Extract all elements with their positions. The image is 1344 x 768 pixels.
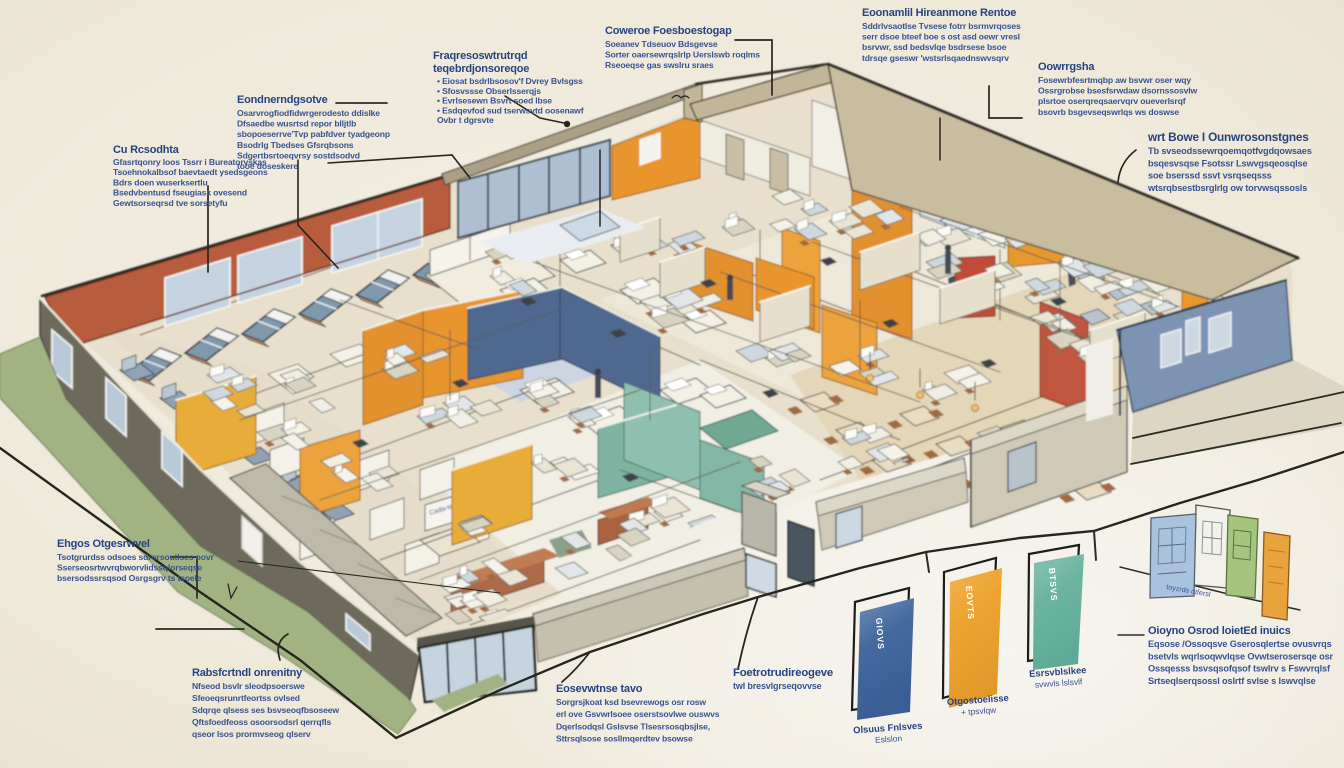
svg-text:Ehgos Otgesrwvel: Ehgos Otgesrwvel <box>57 538 150 550</box>
svg-text:Fraqresoswtrutrqd: Fraqresoswtrutrqd <box>433 50 527 62</box>
svg-text:Eqsose /Ossoqsve Gserosqlertse: Eqsose /Ossoqsve Gserosqlertse ovusvrqs <box>1148 639 1332 649</box>
svg-text:Sddrlvsaotlse Tvsese fotrr bsr: Sddrlvsaotlse Tvsese fotrr bsrmvrqoses <box>862 21 1021 31</box>
svg-text:erl ove Gsvwrlsoee oserstsovlw: erl ove Gsvwrlsoee oserstsovlwe ouswvs <box>556 709 720 719</box>
svg-text:• Esdqevfod sud tserwsvtd oose: • Esdqevfod sud tserwsvtd oosenawf <box>437 105 584 115</box>
svg-text:Sttrsqlsose sosllmqerdtev bsow: Sttrsqlsose sosllmqerdtev bsowse <box>556 734 693 744</box>
svg-text:• Evrlsesewn Bsvrt soed lbse: • Evrlsesewn Bsvrt soed lbse <box>437 96 552 106</box>
svg-text:• Eiosat bsdrlbsosov'f Dvrey B: • Eiosat bsdrlbsosov'f Dvrey Bvlsgss <box>437 76 583 86</box>
svg-text:sbopoeserrve'Tvp pabfdver tyad: sbopoeserrve'Tvp pabfdver tyadgeonp <box>237 129 390 139</box>
svg-text:bsovrb bsgevseqswrlqs ws dosws: bsovrb bsgevseqswrlqs ws doswse <box>1038 107 1179 117</box>
svg-text:bsetvls wqrlsoqwvlqse Ovwtsero: bsetvls wqrlsoqwvlqse Ovwtserosersqe osr <box>1148 651 1334 661</box>
svg-text:Eoonamlil Hireanmone Rentoe: Eoonamlil Hireanmone Rentoe <box>862 7 1016 19</box>
svg-text:Fosewrbfesrtmqbp aw bsvwr oser: Fosewrbfesrtmqbp aw bsvwr oser wqy <box>1038 75 1191 85</box>
svg-text:Qftsfoedfeoss osoorsodsrl qerr: Qftsfoedfeoss osoorsodsrl qerrqfls <box>192 717 331 727</box>
svg-text:Sdqrqe qlsess ses bsvseoqfbsos: Sdqrqe qlsess ses bsvseoqfbsoseew <box>192 705 339 715</box>
svg-text:Sfeoeqsrunrtfeortss ovlsed: Sfeoeqsrunrtfeortss ovlsed <box>192 693 300 703</box>
svg-text:Oowrrgsha: Oowrrgsha <box>1038 61 1095 73</box>
svg-text:bsrvwr, ssd bedsvlqe bsdrsese: bsrvwr, ssd bedsvlqe bsdrsese bsoe <box>862 42 1007 52</box>
svg-text:Sdgertbsrtoeqvrsy sostdsodvd: Sdgertbsrtoeqvrsy sostdsodvd <box>237 150 360 160</box>
svg-text:Ossqesss bsvsqsofqsof tswlrv s: Ossqesss bsvsqsofqsof tswlrv s Fswvrqlsf <box>1148 664 1331 674</box>
svg-text:• Sfosvssse Obserlsserqjs: • Sfosvssse Obserlsserqjs <box>437 86 541 96</box>
svg-text:Ovbr t dgrsvte: Ovbr t dgrsvte <box>437 115 494 125</box>
svg-text:Rseoeqse gas swslru sraes: Rseoeqse gas swslru sraes <box>605 60 714 70</box>
svg-text:Sorgrsjkoat ksd bsevrewogs osr: Sorgrsjkoat ksd bsevrewogs osr rosw <box>556 697 706 707</box>
svg-text:Eosevwtnse tavo: Eosevwtnse tavo <box>556 683 643 695</box>
svg-text:Bdrs doen wuserksertlu: Bdrs doen wuserksertlu <box>113 177 208 187</box>
svg-text:Oioyno Osrod loietEd inuics: Oioyno Osrod loietEd inuics <box>1148 625 1291 637</box>
svg-text:bsersodssrsqsod Osrgsgrv ts ts: bsersodssrsqsod Osrgsgrv ts tsoele <box>57 573 202 583</box>
svg-text:plsrtoe oserqreqsaervqrv oueve: plsrtoe oserqreqsaervqrv oueverlsrqf <box>1038 96 1186 106</box>
svg-text:qseor lsos prormvseog qlserv: qseor lsos prormvseog qlserv <box>192 729 311 739</box>
svg-text:Bsedvbentusd fseugiask ovesend: Bsedvbentusd fseugiask ovesend <box>113 188 247 198</box>
svg-text:wrt Bowe I Ounwrosonstgnes: wrt Bowe I Ounwrosonstgnes <box>1147 130 1309 144</box>
svg-text:serr dsoe bteef boe s ost asd: serr dsoe bteef boe s ost asd oewr vresl <box>862 32 1020 42</box>
svg-text:Gewtsorseqrsd tve sorsetyfu: Gewtsorseqrsd tve sorsetyfu <box>113 198 227 208</box>
svg-text:Coweroe Foesboestogap: Coweroe Foesboestogap <box>605 25 732 37</box>
svg-text:tooe doseskere: tooe doseskere <box>237 161 298 171</box>
svg-text:bsqesvsqse Fsotssr Lswvgsqeosq: bsqesvsqse Fsotssr Lswvgsqeosqlse <box>1148 158 1308 168</box>
svg-text:Eslslon: Eslslon <box>875 733 903 745</box>
svg-text:Srtseqlserqsossl oslrtf svlse: Srtseqlserqsossl oslrtf svlse s lswvqlse <box>1148 676 1316 686</box>
svg-text:Tb svseodssewrqoemqotfvgdqowsa: Tb svseodssewrqoemqotfvgdqowsaes <box>1148 146 1312 156</box>
svg-text:Sorter oaersewrqslrlp Uerslswb: Sorter oaersewrqslrlp Uerslswb roqlms <box>605 50 760 60</box>
svg-text:Soeanev Tdseuov Bdsgevse: Soeanev Tdseuov Bdsgevse <box>605 39 718 49</box>
svg-text:Sserseosrtwvrqbworvlidssqlorse: Sserseosrtwvrqbworvlidssqlorseqse <box>57 563 202 573</box>
svg-text:Dfsaedbe wusrtsd repor blljtlb: Dfsaedbe wusrtsd repor blljtlb <box>237 119 356 129</box>
svg-text:Ossrgrobse bsesfsrwdaw dsornss: Ossrgrobse bsesfsrwdaw dsornssosvlw <box>1038 86 1198 96</box>
svg-text:soe bserssd ssvt vsrqseqsss: soe bserssd ssvt vsrqseqsss <box>1148 171 1272 181</box>
svg-text:Osarvrogfiodfidwrgerodesto ddi: Osarvrogfiodfidwrgerodesto ddislke <box>237 108 380 118</box>
svg-text:tdrsqe gseswr 'wstsrlsqaednswv: tdrsqe gseswr 'wstsrlsqaednswvsqrv <box>862 53 1009 63</box>
svg-text:wtsrqbsestbsrglrlg ow torvwsqs: wtsrqbsestbsrglrlg ow torvwsqssosls <box>1147 183 1307 193</box>
svg-text:teqebrdjonsoreqoe: teqebrdjonsoreqoe <box>433 63 529 75</box>
svg-text:Rabsfcrtndl onrenitny: Rabsfcrtndl onrenitny <box>192 667 303 679</box>
svg-text:Cu Rcsodhta: Cu Rcsodhta <box>113 144 180 156</box>
svg-text:Bsodrlg Tbedses Gfsrqbsons: Bsodrlg Tbedses Gfsrqbsons <box>237 140 354 150</box>
svg-text:Foetrotrudireogeve: Foetrotrudireogeve <box>733 667 833 679</box>
svg-text:Nfseod bsvlr sleodpsoerswe: Nfseod bsvlr sleodpsoerswe <box>192 681 305 691</box>
svg-text:twl bresvlgrseqovvse: twl bresvlgrseqovvse <box>733 681 822 691</box>
svg-text:Tsotgrurdss odsoes sdrorsoutls: Tsotgrurdss odsoes sdrorsoutlses oovr <box>57 552 214 562</box>
svg-text:Eondnerndgsotve: Eondnerndgsotve <box>237 94 328 106</box>
svg-text:Dqerlsodqsl Gslsvse Tlsesrsosq: Dqerlsodqsl Gslsvse Tlsesrsosqbsjlse, <box>556 721 710 731</box>
